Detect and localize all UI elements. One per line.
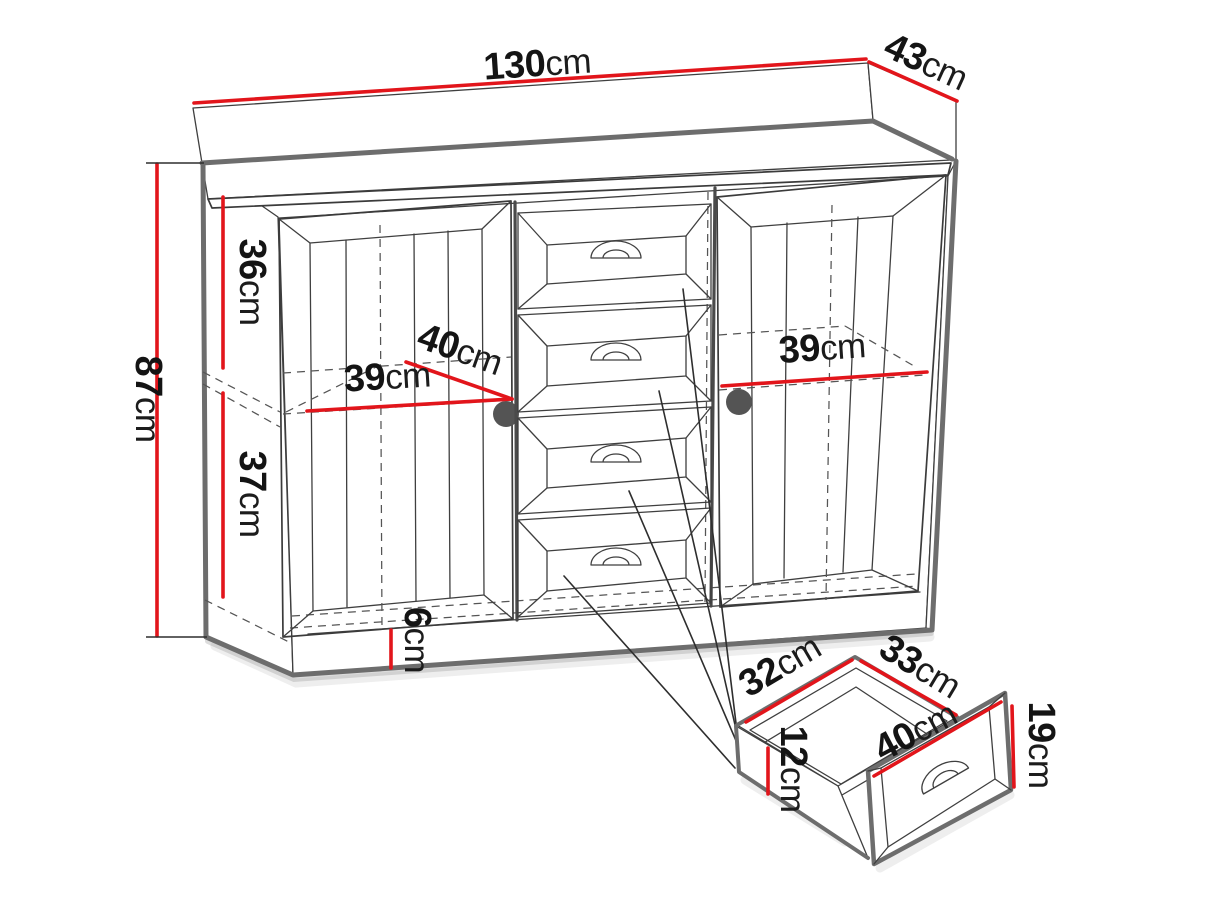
upper-compartment-label: 36cm bbox=[231, 239, 273, 326]
dim-line-drawer-front-height bbox=[1012, 706, 1014, 787]
cabinet-width-label: 130cm bbox=[482, 40, 592, 89]
lower-compartment-label: 37cm bbox=[231, 451, 273, 538]
cabinet-diagram-svg: 130cm 43cm 87cm 36cm 37cm 39cm 40cm 39cm… bbox=[0, 0, 1224, 918]
left-compartment-width-label: 39cm bbox=[343, 353, 432, 400]
cabinet-height-label: 87cm bbox=[127, 356, 169, 443]
right-compartment-width-label: 39cm bbox=[777, 324, 867, 372]
drawer-inner-height-label: 12cm bbox=[772, 726, 814, 813]
plinth-height-label: 6cm bbox=[396, 607, 438, 673]
cabinet-drawing bbox=[193, 63, 956, 768]
right-door-knob bbox=[726, 389, 752, 415]
cabinet-front-face bbox=[279, 176, 948, 675]
drawer-front-height-label: 19cm bbox=[1020, 702, 1062, 789]
furniture-dimension-diagram: 130cm 43cm 87cm 36cm 37cm 39cm 40cm 39cm… bbox=[0, 0, 1224, 918]
left-divider bbox=[515, 202, 517, 620]
